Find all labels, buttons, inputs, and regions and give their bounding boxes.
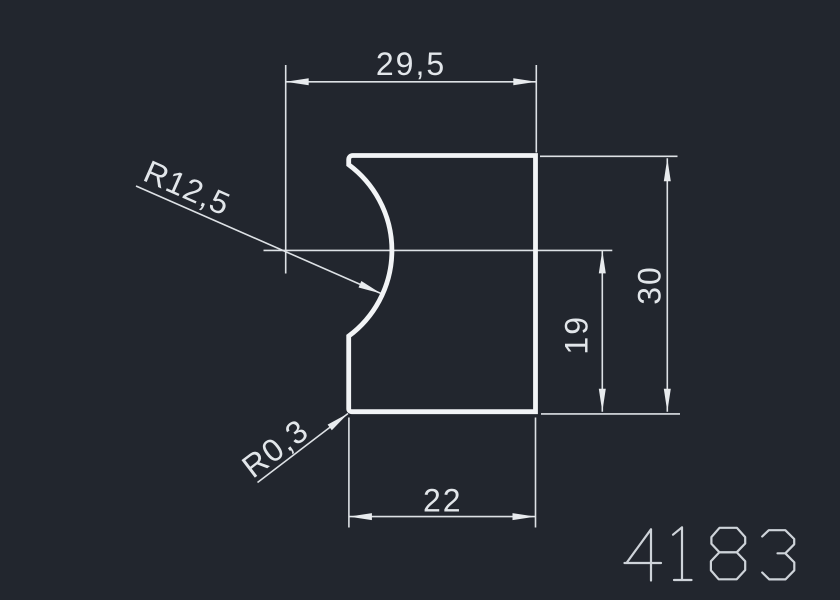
svg-text:19: 19	[559, 315, 595, 355]
svg-text:30: 30	[632, 265, 668, 305]
svg-text:29,5: 29,5	[376, 46, 446, 82]
svg-text:22: 22	[423, 483, 463, 519]
